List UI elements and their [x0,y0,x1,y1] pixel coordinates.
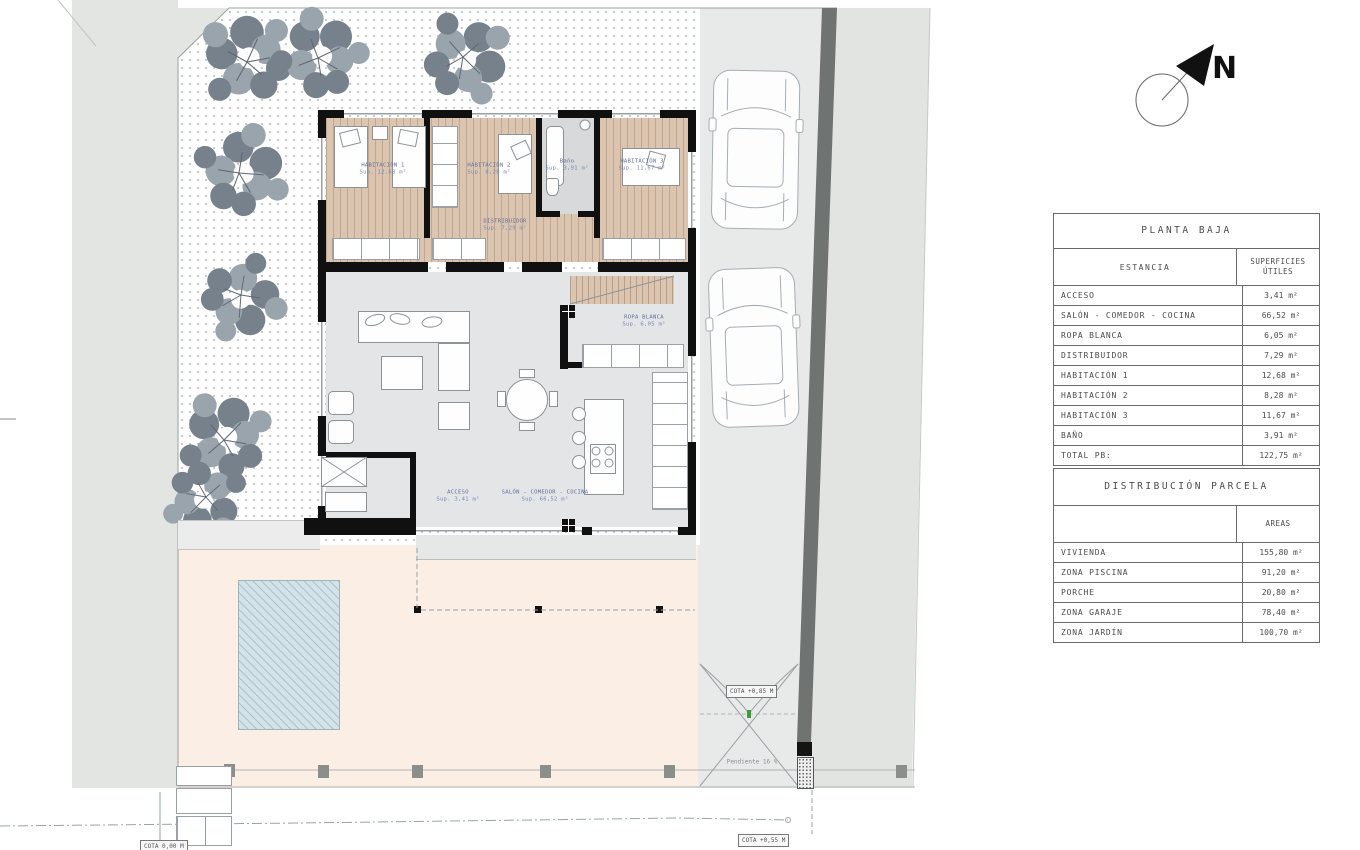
row-value: 12,68 m² [1242,366,1319,385]
col-header-estancia: ESTANCIA [1054,249,1236,285]
table-row: ROPA BLANCA6,05 m² [1054,325,1319,345]
table-body: VIVIENDA155,80 m²ZONA PISCINA91,20 m²POR… [1054,542,1319,642]
row-label: PORCHE [1054,583,1242,602]
col-header-superficies: SUPERFICIES ÚTILES [1236,249,1319,285]
table-row: TOTAL PB:122,75 m² [1054,445,1319,465]
room-label: BañoSup. 3,91 m² [545,159,588,174]
table-row: ZONA PISCINA91,20 m² [1054,562,1319,582]
row-label: BAÑO [1054,426,1242,445]
table-row: BAÑO3,91 m² [1054,425,1319,445]
row-label: ZONA PISCINA [1054,563,1242,582]
room-label: ROPA BLANCASup. 6,05 m² [622,315,665,330]
row-value: 11,67 m² [1242,406,1319,425]
row-value: 91,20 m² [1242,563,1319,582]
table-header: AREAS [1054,506,1319,542]
row-value: 3,41 m² [1242,286,1319,305]
row-value: 155,80 m² [1242,543,1319,562]
room-label: HABITACIÓN 3Sup. 11,67 m² [619,159,666,174]
table-body: ACCESO3,41 m²SALÓN - COMEDOR - COCINA66,… [1054,285,1319,465]
distribucion-parcela-table: DISTRIBUCIÓN PARCELA AREAS VIVIENDA155,8… [1053,468,1320,643]
row-value: 78,40 m² [1242,603,1319,622]
table-row: DISTRIBUIDOR7,29 m² [1054,345,1319,365]
row-value: 122,75 m² [1242,446,1319,465]
table-row: HABITACIÓN 112,68 m² [1054,365,1319,385]
table-row: ZONA JARDÍN100,70 m² [1054,622,1319,642]
row-label: HABITACIÓN 1 [1054,366,1242,385]
site-plan: N [0,0,1360,850]
row-label: SALÓN - COMEDOR - COCINA [1054,306,1242,325]
cota-street-label: COTA +0,55 M [738,834,789,847]
row-value: 8,28 m² [1242,386,1319,405]
table-row: PORCHE20,80 m² [1054,582,1319,602]
table-row: ZONA GARAJE78,40 m² [1054,602,1319,622]
table-row: HABITACIÓN 28,28 m² [1054,385,1319,405]
table-title: DISTRIBUCIÓN PARCELA [1054,469,1319,506]
row-label: VIVIENDA [1054,543,1242,562]
room-label: SALÓN - COMEDOR - COCINASup. 66,52 m² [502,490,589,505]
table-header: ESTANCIA SUPERFICIES ÚTILES [1054,249,1319,285]
slope-label: Pendiente 16 % [727,759,778,766]
row-label: ACCESO [1054,286,1242,305]
table-row: SALÓN - COMEDOR - COCINA66,52 m² [1054,305,1319,325]
table-row: HABITACIÓN 311,67 m² [1054,405,1319,425]
room-label: HABITACIÓN 2Sup. 8,28 m² [467,163,510,178]
room-label: ACCESOSup. 3,41 m² [436,490,479,505]
cota-left-label: COTA 0,00 M [140,840,188,850]
table-row: ACCESO3,41 m² [1054,285,1319,305]
row-value: 20,80 m² [1242,583,1319,602]
table-row: VIVIENDA155,80 m² [1054,542,1319,562]
row-label: HABITACIÓN 2 [1054,386,1242,405]
row-label: TOTAL PB: [1054,446,1242,465]
row-label: ZONA JARDÍN [1054,623,1242,642]
room-label: HABITACIÓN 1Sup. 12,68 m² [360,163,407,178]
table-title: PLANTA BAJA [1054,214,1319,249]
planta-baja-table: PLANTA BAJA ESTANCIA SUPERFICIES ÚTILES … [1053,213,1320,466]
room-label: DISTRIBUIDORSup. 7,29 m² [483,219,526,234]
row-value: 66,52 m² [1242,306,1319,325]
col-header-blank [1054,506,1236,542]
row-value: 6,05 m² [1242,326,1319,345]
row-label: ZONA GARAJE [1054,603,1242,622]
row-label: DISTRIBUIDOR [1054,346,1242,365]
row-value: 100,70 m² [1242,623,1319,642]
row-value: 3,91 m² [1242,426,1319,445]
col-header-areas: AREAS [1236,506,1319,542]
row-label: HABITACIÓN 3 [1054,406,1242,425]
row-label: ROPA BLANCA [1054,326,1242,345]
row-value: 7,29 m² [1242,346,1319,365]
cota-gate-label: COTA +0,85 M [726,685,777,698]
